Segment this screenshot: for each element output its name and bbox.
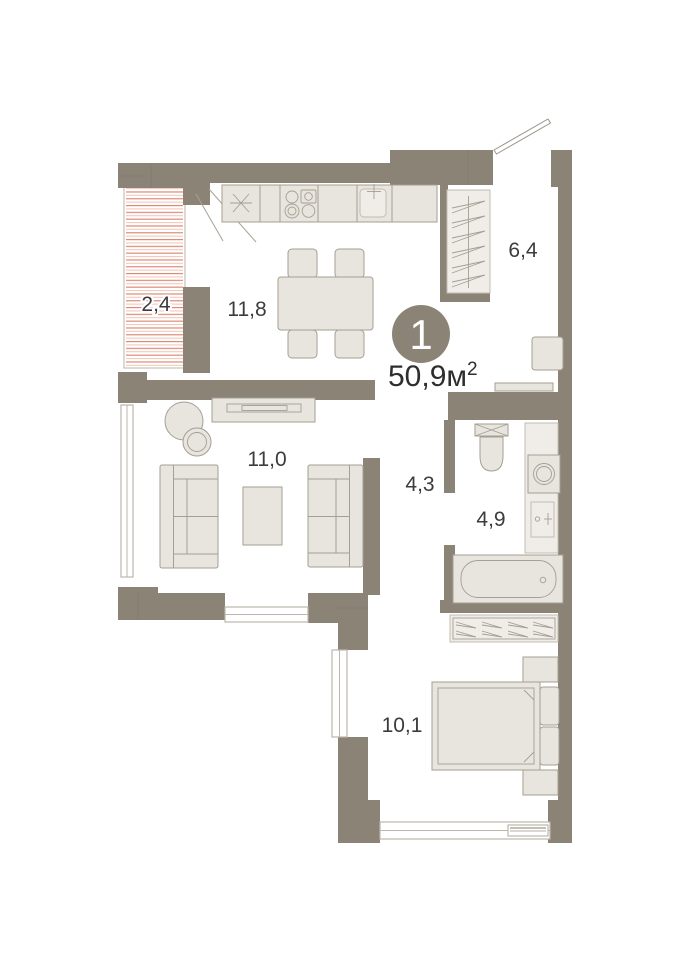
floor-plan-page: 2,4 11,8 6,4 11,0 4,3 4,9 10,1 1 50,9м2 [0,0,696,960]
room-label-kitchen: 11,8 [227,298,266,321]
living-window-left [121,405,133,577]
sofa-left [160,465,218,568]
chair [288,249,317,278]
room-label-bedroom: 10,1 [382,714,423,737]
nightstand [523,770,558,795]
dining-table [278,277,373,330]
toilet [475,424,508,471]
room-label-corridor: 4,3 [405,473,434,496]
unit-area: 50,9м2 [388,359,478,393]
sofa-right [308,465,363,567]
bathroom-sink [531,502,554,537]
chair [288,330,317,358]
room-label-hallway: 6,4 [508,239,538,262]
floor-plan: 2,4 11,8 6,4 11,0 4,3 4,9 10,1 1 50,9м2 [0,0,696,960]
chair [335,330,364,358]
bathtub [453,555,563,603]
bed [432,682,559,770]
bedroom [432,615,559,795]
hall-cabinet [532,337,563,370]
balcony [124,186,185,368]
bedroom-window-bottom [380,822,550,839]
entrance-door-leaf [494,119,551,154]
kitchen-counter [222,185,437,222]
unit-badge: 1 50,9м2 [388,305,478,393]
room-label-living: 11,0 [247,448,286,471]
room-label-balcony: 2,4 [141,293,171,316]
coffee-table [243,487,282,545]
window-vent [508,825,548,836]
bedroom-window-left [332,650,347,737]
washing-machine [528,455,560,493]
side-tables [165,402,211,456]
hall-wardrobe [447,190,490,293]
chair [335,249,364,278]
console-shelf [495,383,553,391]
balcony-hatch [126,188,183,366]
rooms-count: 1 [409,311,432,358]
dining-set [278,249,373,358]
living-window-bottom [225,607,308,622]
living-room [160,398,363,568]
pillow [540,727,559,765]
tv-stand [212,398,315,422]
pillow [540,687,559,725]
bedroom-wardrobe [450,615,558,642]
kitchen-sink [360,184,386,217]
room-label-bathroom: 4,9 [476,508,505,531]
nightstand [523,657,558,682]
bathroom [453,423,563,603]
